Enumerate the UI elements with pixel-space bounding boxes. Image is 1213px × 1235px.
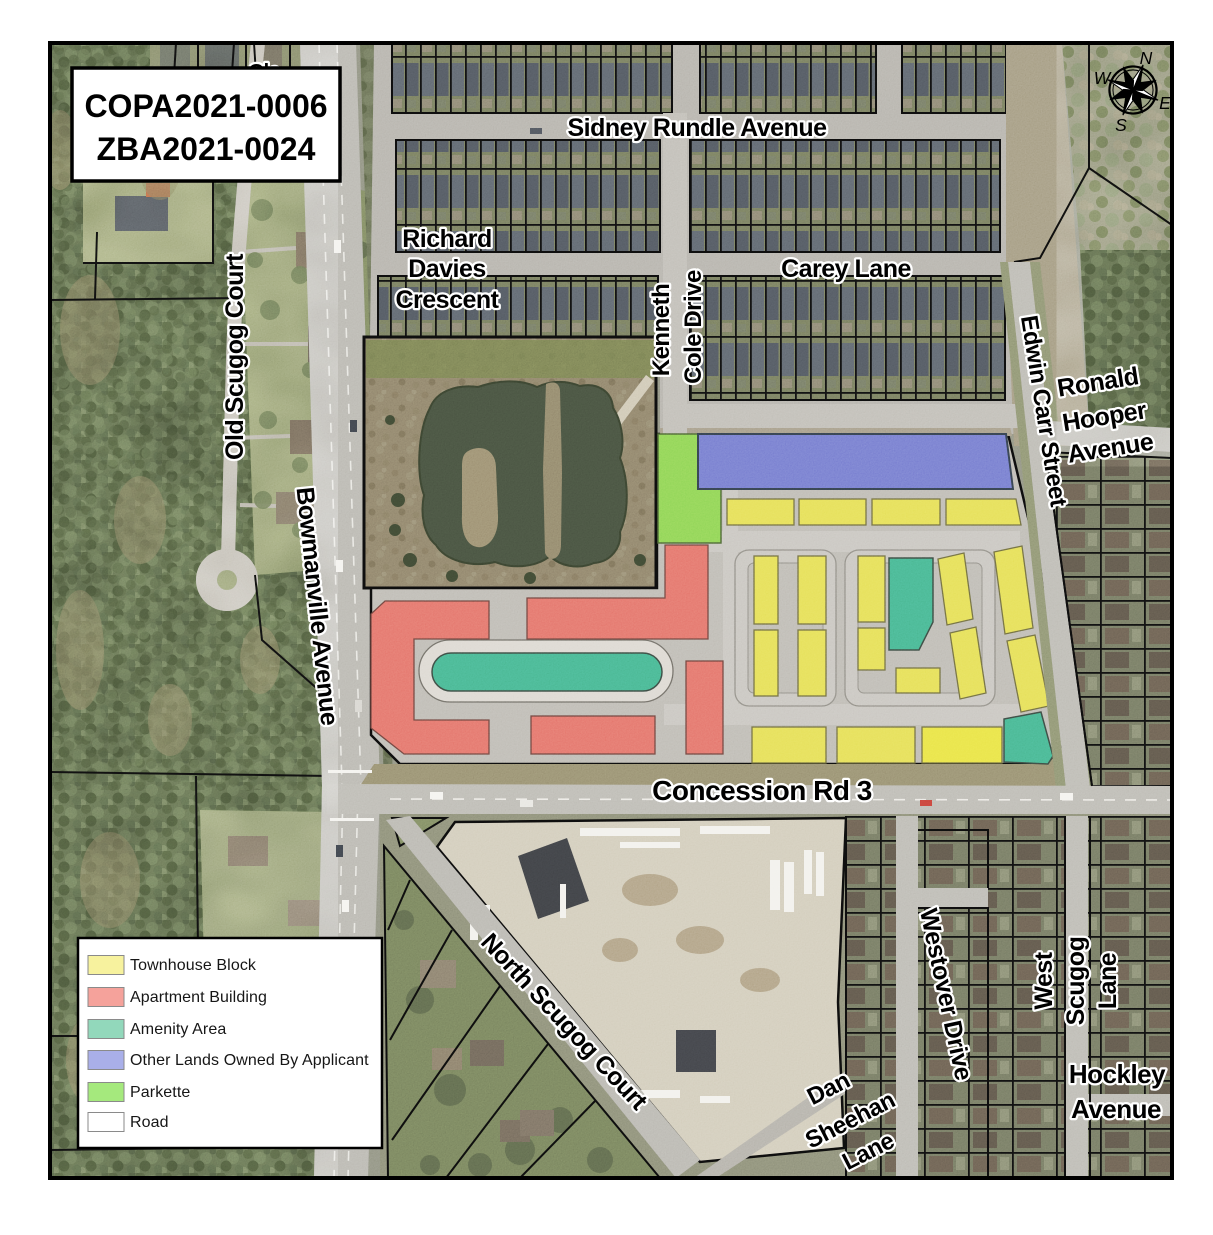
svg-text:Lane: Lane bbox=[1094, 952, 1122, 1009]
svg-text:Hockley: Hockley bbox=[1069, 1059, 1166, 1089]
svg-text:Old Scugog Court: Old Scugog Court bbox=[221, 253, 249, 460]
svg-text:Sidney Rundle Avenue: Sidney Rundle Avenue bbox=[567, 114, 827, 142]
svg-text:Crescent: Crescent bbox=[396, 286, 500, 314]
svg-text:ZBA2021-0024: ZBA2021-0024 bbox=[97, 131, 316, 167]
svg-text:Davies: Davies bbox=[408, 255, 486, 283]
svg-text:West: West bbox=[1030, 951, 1058, 1009]
svg-text:Carey Lane: Carey Lane bbox=[781, 255, 911, 283]
svg-text:Kenneth: Kenneth bbox=[648, 284, 675, 377]
svg-text:COPA2021-0006: COPA2021-0006 bbox=[84, 88, 327, 124]
svg-text:Townhouse Block: Townhouse Block bbox=[130, 957, 257, 974]
svg-text:E: E bbox=[1159, 93, 1171, 113]
svg-text:Concession Rd 3: Concession Rd 3 bbox=[652, 775, 872, 806]
svg-text:Scugog: Scugog bbox=[1062, 937, 1090, 1026]
svg-text:Other Lands Owned By Applicant: Other Lands Owned By Applicant bbox=[130, 1052, 369, 1069]
svg-text:W: W bbox=[1094, 68, 1112, 88]
svg-text:S: S bbox=[1115, 115, 1127, 135]
svg-text:Road: Road bbox=[130, 1114, 169, 1131]
svg-text:Parkette: Parkette bbox=[130, 1084, 190, 1101]
svg-text:Avenue: Avenue bbox=[1071, 1094, 1161, 1124]
svg-text:N: N bbox=[1140, 48, 1153, 68]
svg-text:Amenity Area: Amenity Area bbox=[130, 1021, 226, 1038]
svg-text:Apartment Building: Apartment Building bbox=[130, 989, 267, 1006]
svg-text:Cole Drive: Cole Drive bbox=[680, 270, 707, 384]
svg-text:Richard: Richard bbox=[402, 225, 492, 253]
